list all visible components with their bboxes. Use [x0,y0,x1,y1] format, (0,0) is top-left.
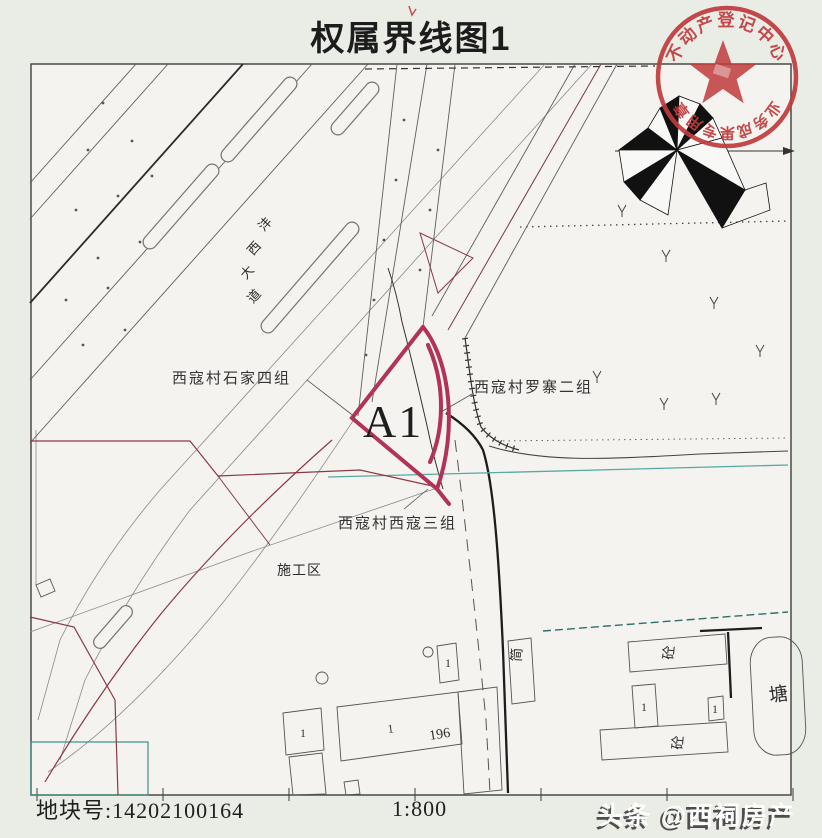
floor-label: 1 [712,702,718,716]
structure-label: 砼 [670,735,687,750]
page-title: 权属界线图1 [310,20,512,58]
pond-label: 塘 [768,683,790,707]
parcel-a1-label: A1 [363,396,423,447]
label-south-group: 西寇村西寇三组 [338,515,457,532]
map-scale: 1:800 [392,796,447,821]
plot-number: 地块号:14202100164 [36,798,244,823]
shed-label: 简 [508,647,526,662]
floor-label: 1 [445,656,451,670]
label-construction-area: 施工区 [277,563,322,579]
label-west-group: 西寇村石家四组 [172,370,291,387]
label-east-group: 西寇村罗寨二组 [474,378,593,396]
watermark: 头条 @西祠房产 头条 @西祠房产 [596,801,796,833]
floor-label: 1 [300,726,306,740]
cadastral-map-page: 权属界线图1 [0,0,822,838]
map-canvas: 权属界线图1 [0,0,822,838]
watermark-text: 头条 @西祠房产 [599,801,796,830]
floor-label: 1 [641,700,647,714]
structure-label: 砼 [661,645,678,660]
